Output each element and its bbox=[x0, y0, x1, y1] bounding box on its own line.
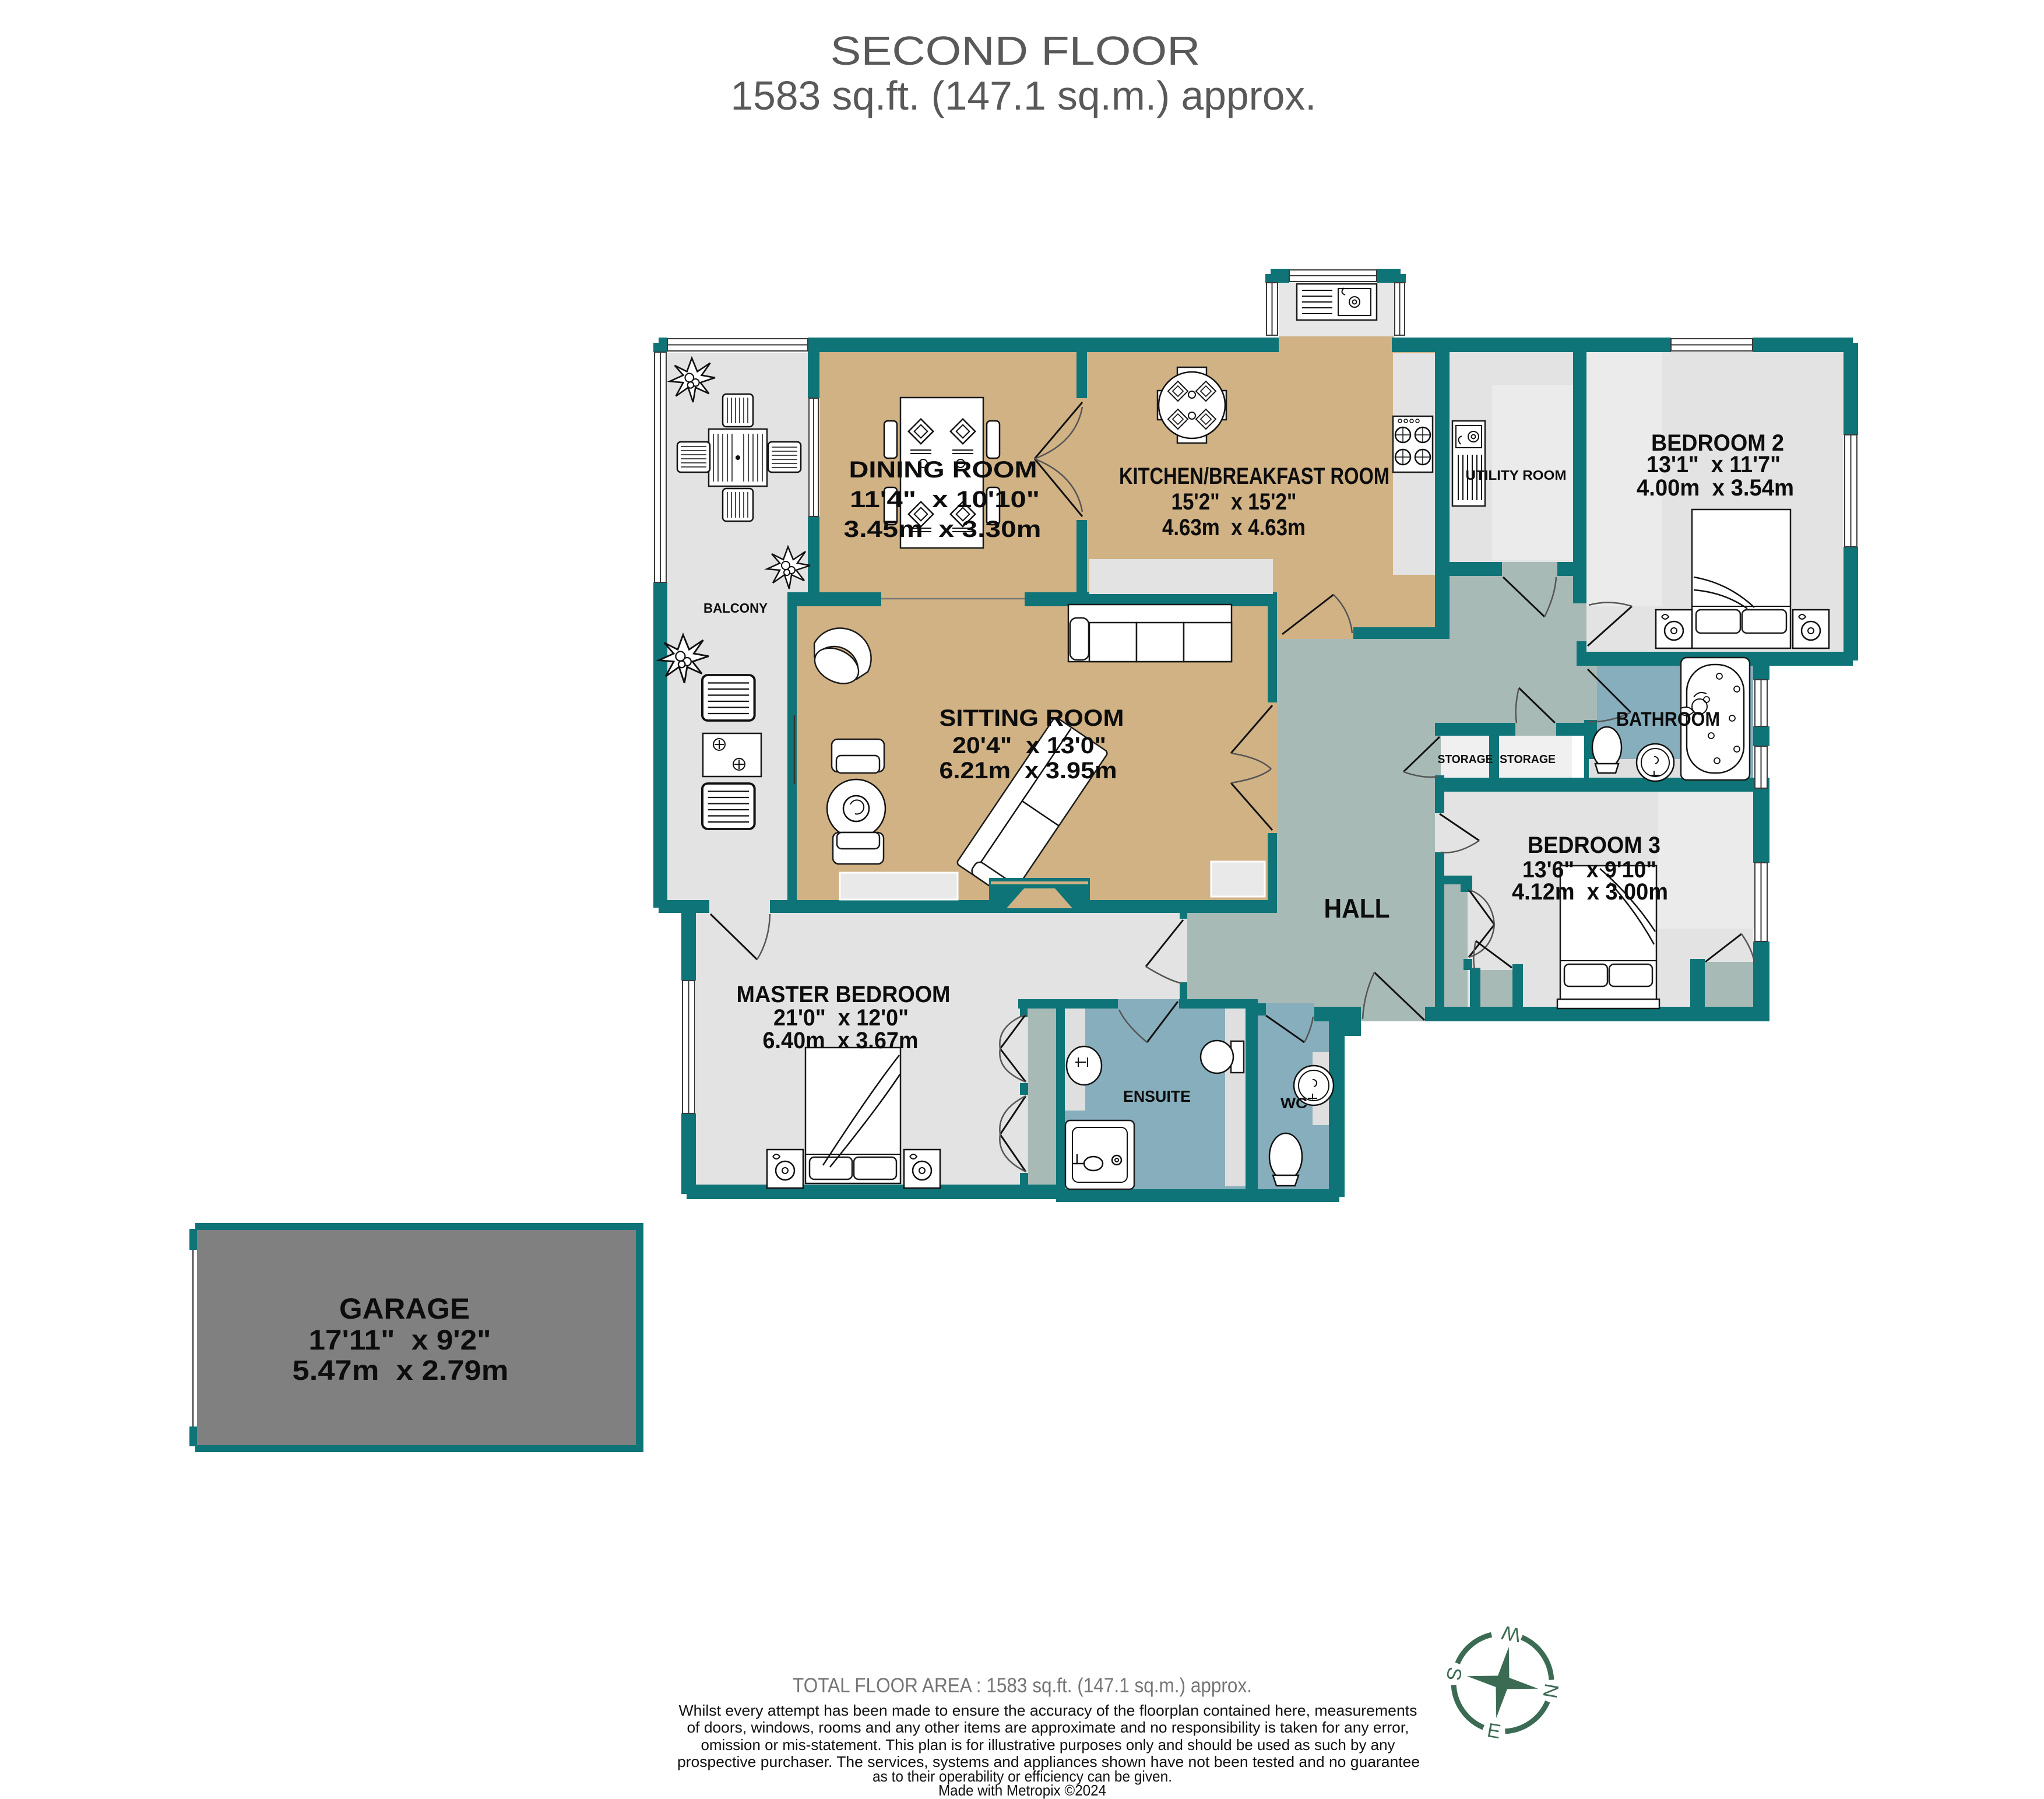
svg-text:6.40m x 3.67m: 6.40m x 3.67m bbox=[763, 1028, 919, 1053]
svg-text:STORAGE: STORAGE bbox=[1438, 753, 1493, 766]
svg-text:20'4" x 13'0": 20'4" x 13'0" bbox=[952, 733, 1106, 758]
svg-text:Whilst every attempt has been: Whilst every attempt has been made to en… bbox=[679, 1702, 1417, 1719]
svg-text:17'11" x 9'2": 17'11" x 9'2" bbox=[309, 1325, 491, 1356]
svg-text:13'1" x 11'7": 13'1" x 11'7" bbox=[1647, 452, 1781, 477]
svg-text:5.47m x 2.79m: 5.47m x 2.79m bbox=[293, 1355, 509, 1386]
svg-text:SECOND FLOOR: SECOND FLOOR bbox=[831, 28, 1201, 73]
svg-text:15'2" x 15'2": 15'2" x 15'2" bbox=[1171, 489, 1297, 515]
svg-text:4.63m x 4.63m: 4.63m x 4.63m bbox=[1162, 515, 1306, 540]
svg-text:BEDROOM 3: BEDROOM 3 bbox=[1528, 832, 1660, 858]
svg-text:21'0" x 12'0": 21'0" x 12'0" bbox=[773, 1005, 909, 1031]
svg-text:W: W bbox=[1500, 1621, 1522, 1646]
svg-text:MASTER BEDROOM: MASTER BEDROOM bbox=[737, 982, 951, 1007]
svg-text:STORAGE: STORAGE bbox=[1500, 753, 1556, 766]
svg-text:KITCHEN/BREAKFAST ROOM: KITCHEN/BREAKFAST ROOM bbox=[1119, 463, 1389, 489]
svg-text:6.21m x 3.95m: 6.21m x 3.95m bbox=[940, 758, 1117, 783]
svg-text:BATHROOM: BATHROOM bbox=[1616, 708, 1720, 730]
svg-text:omission or mis-statement. Thi: omission or mis-statement. This plan is … bbox=[701, 1736, 1395, 1754]
svg-text:4.00m x 3.54m: 4.00m x 3.54m bbox=[1637, 475, 1794, 501]
svg-text:ENSUITE: ENSUITE bbox=[1123, 1087, 1191, 1105]
svg-text:SITTING ROOM: SITTING ROOM bbox=[940, 705, 1124, 731]
svg-text:WC: WC bbox=[1280, 1095, 1307, 1112]
svg-text:TOTAL FLOOR AREA : 1583 sq.ft.: TOTAL FLOOR AREA : 1583 sq.ft. (147.1 sq… bbox=[793, 1674, 1252, 1697]
svg-text:1583 sq.ft. (147.1 sq.m.) appr: 1583 sq.ft. (147.1 sq.m.) approx. bbox=[731, 73, 1317, 118]
svg-text:GARAGE: GARAGE bbox=[339, 1292, 470, 1325]
svg-text:Made with Metropix ©2024: Made with Metropix ©2024 bbox=[938, 1782, 1106, 1799]
svg-text:BALCONY: BALCONY bbox=[703, 600, 768, 616]
svg-text:HALL: HALL bbox=[1324, 893, 1390, 923]
svg-text:DINING ROOM: DINING ROOM bbox=[849, 457, 1037, 483]
svg-text:11'4" x 10'10": 11'4" x 10'10" bbox=[850, 487, 1040, 512]
svg-text:of doors, windows, rooms and a: of doors, windows, rooms and any other i… bbox=[687, 1719, 1409, 1736]
svg-text:4.12m x 3.00m: 4.12m x 3.00m bbox=[1512, 879, 1668, 905]
svg-text:UTILITY ROOM: UTILITY ROOM bbox=[1466, 468, 1567, 483]
svg-text:3.45m x 3.30m: 3.45m x 3.30m bbox=[844, 516, 1042, 542]
